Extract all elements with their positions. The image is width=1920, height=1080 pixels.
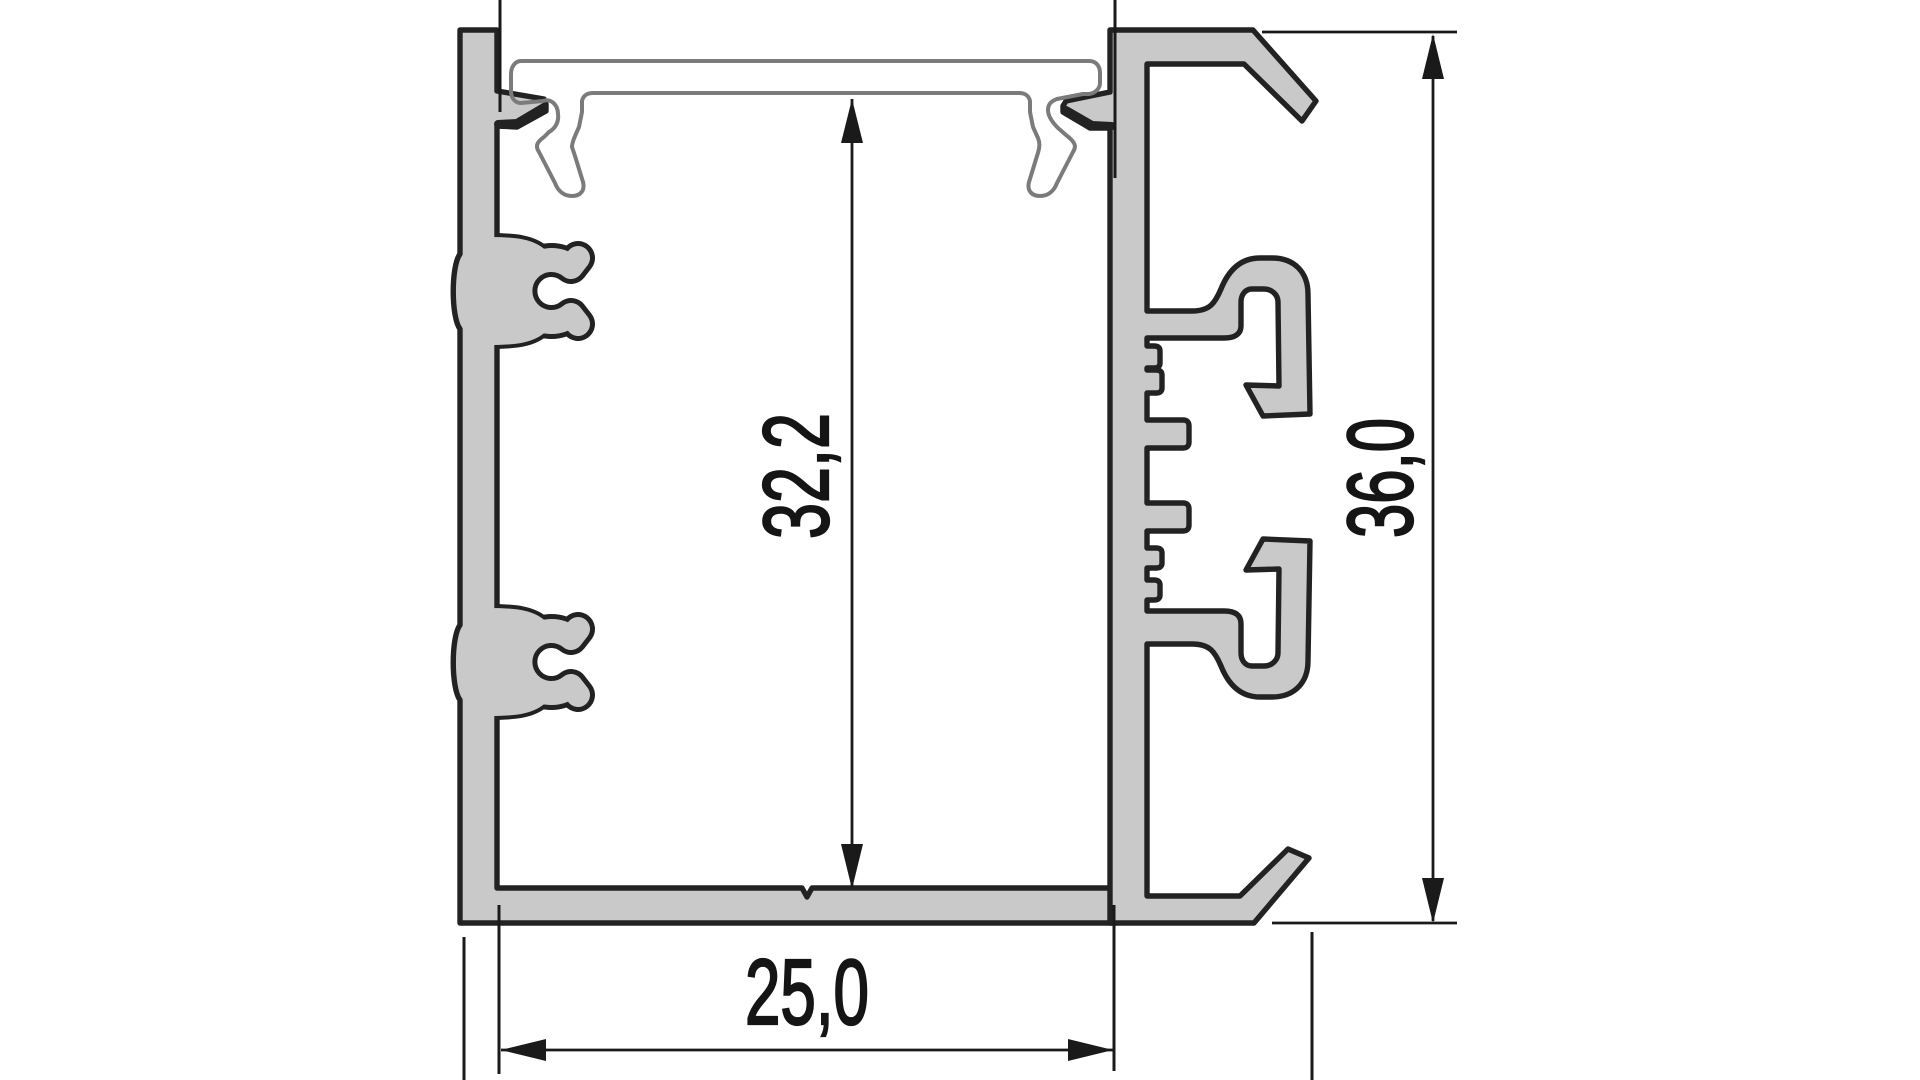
svg-text:32,2: 32,2: [744, 413, 848, 539]
svg-text:36,0: 36,0: [1328, 418, 1432, 538]
svg-text:25,0: 25,0: [745, 940, 869, 1044]
